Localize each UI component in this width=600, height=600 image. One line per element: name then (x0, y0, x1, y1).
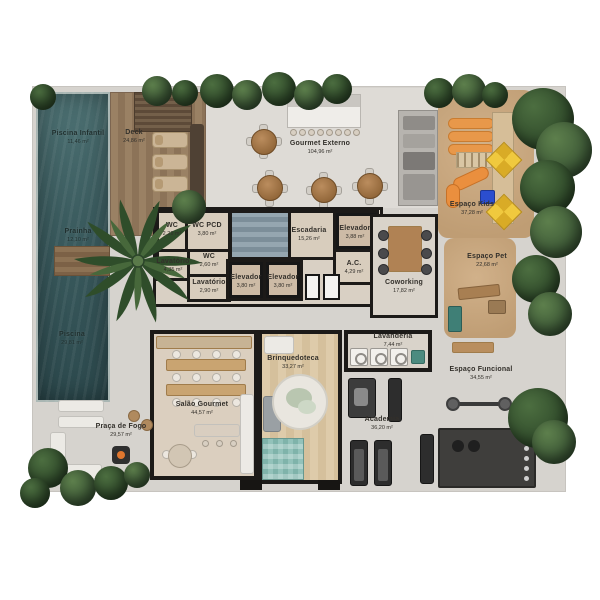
chair (172, 373, 181, 382)
barbell-plate (446, 397, 460, 411)
washing-machine (390, 348, 408, 366)
wall-stub (318, 480, 340, 490)
bush (172, 80, 198, 106)
chair (232, 350, 241, 359)
bush (482, 82, 508, 108)
office-chair (378, 248, 389, 259)
sun-lounger (152, 154, 188, 170)
bush (424, 78, 454, 108)
chair (192, 350, 201, 359)
tree (530, 206, 582, 258)
treadmill (350, 440, 368, 486)
stool (202, 440, 209, 447)
office-chair (421, 264, 432, 275)
bush (322, 74, 352, 104)
laundry-basket (411, 350, 425, 364)
bush (94, 466, 128, 500)
tree (532, 420, 576, 464)
room-elevador-1 (226, 259, 266, 301)
wood-bench (452, 342, 494, 353)
gym-machine-seat (354, 388, 368, 406)
wood-pouf (128, 410, 140, 422)
office-chair (421, 230, 432, 241)
room-escadaria-stairs (229, 210, 291, 260)
dining-table (166, 359, 246, 371)
pet-steps (488, 300, 506, 314)
bush (200, 74, 234, 108)
office-chair (378, 264, 389, 275)
sideboard (156, 336, 252, 349)
bush (60, 470, 96, 506)
stool (326, 129, 333, 136)
chair (192, 373, 201, 382)
wood-pouf (141, 419, 153, 431)
stool (317, 129, 324, 136)
chair (172, 350, 181, 359)
stool (290, 129, 297, 136)
exercise-bike (388, 378, 402, 422)
stool (353, 129, 360, 136)
stool (335, 129, 342, 136)
tree (528, 292, 572, 336)
bush (30, 84, 56, 110)
bush (232, 80, 262, 110)
wall-stub (240, 480, 262, 490)
stool (344, 129, 351, 136)
bush (20, 478, 50, 508)
room-elevador-2 (263, 259, 303, 301)
playground-tube (448, 131, 494, 142)
room-escadaria-landing (288, 210, 336, 260)
bush (262, 72, 296, 106)
bush (124, 462, 150, 488)
treadmill (374, 440, 392, 486)
kitchen-island (194, 424, 240, 437)
washing-machine (350, 348, 368, 366)
office-chair (378, 230, 389, 241)
stool (216, 440, 223, 447)
chair (212, 373, 221, 382)
toy-crib (264, 336, 294, 354)
grill-storage-cabinet (398, 110, 438, 206)
play-panel (480, 190, 495, 204)
round-table (257, 175, 283, 201)
office-chair (421, 248, 432, 259)
stool (308, 129, 315, 136)
bush (452, 74, 486, 108)
round-table (311, 177, 337, 203)
dining-table (166, 384, 246, 396)
bush (294, 80, 324, 110)
stool (299, 129, 306, 136)
stool (230, 440, 237, 447)
round-table (251, 129, 277, 155)
shaft (305, 274, 320, 300)
slide-end (446, 184, 460, 208)
palm-tree-icon (63, 186, 213, 336)
bush (142, 76, 172, 106)
shaft (323, 274, 340, 300)
chair (212, 350, 221, 359)
outdoor-bench (58, 416, 104, 428)
playground-tube (448, 118, 494, 129)
chair (172, 398, 181, 407)
floor-plan: Piscina Infantil11,46 m² Deck24,86 m² Go… (0, 0, 600, 600)
play-mat-corner (262, 438, 304, 480)
small-round-table (168, 444, 192, 468)
pet-agility-item (448, 306, 462, 332)
coworking-table (388, 226, 422, 272)
dumbbell-rack (420, 434, 434, 484)
sun-lounger (152, 132, 188, 148)
chair (232, 373, 241, 382)
outdoor-bench (58, 400, 104, 412)
washing-machine (370, 348, 388, 366)
fire-pit (112, 446, 130, 464)
rug-pattern (298, 400, 316, 414)
round-table (357, 173, 383, 199)
chair (192, 398, 201, 407)
chair (212, 398, 221, 407)
kitchen-counter (240, 394, 254, 474)
